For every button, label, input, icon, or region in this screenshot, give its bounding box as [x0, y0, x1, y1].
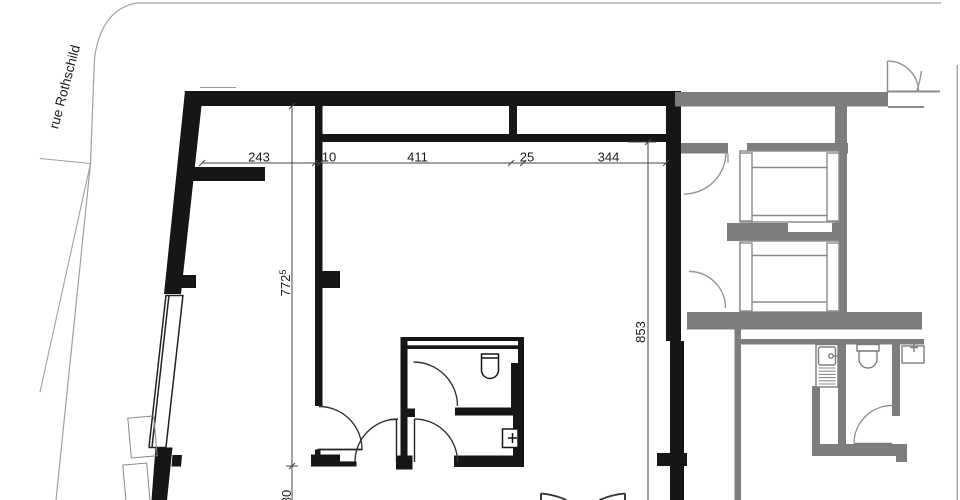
- svg-text:10: 10: [322, 150, 336, 165]
- svg-text:344: 344: [598, 150, 620, 165]
- svg-text:853: 853: [633, 321, 648, 343]
- svg-text:243: 243: [248, 150, 270, 165]
- svg-text:25: 25: [520, 150, 534, 165]
- svg-text:411: 411: [407, 150, 428, 165]
- svg-text:80: 80: [279, 490, 294, 500]
